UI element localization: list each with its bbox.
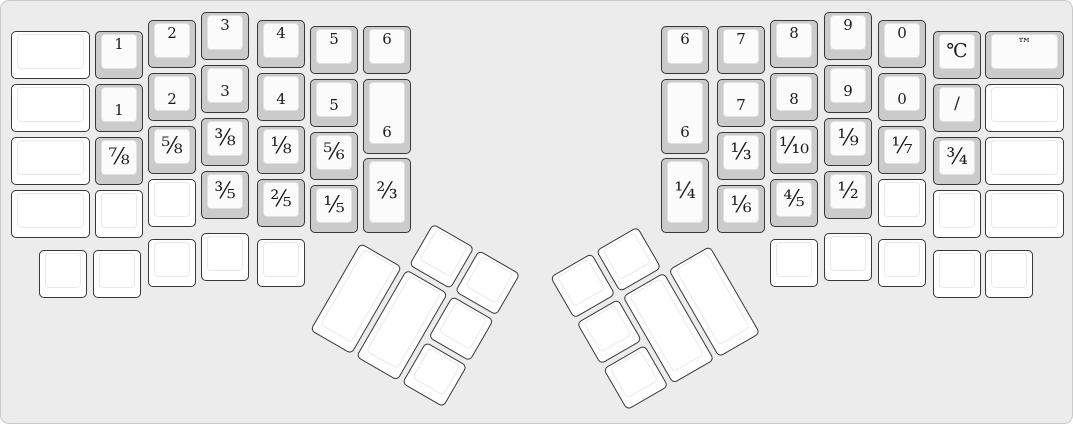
key-legend: ℃: [946, 42, 967, 61]
key-legend: ⅞: [108, 148, 129, 168]
key-7[interactable]: 7: [717, 79, 765, 127]
keycap-top: ⅓: [723, 135, 759, 170]
keycap-top: ⅕: [316, 188, 352, 223]
key-frac-2-5[interactable]: ⅖: [257, 179, 305, 227]
keycap-top: 6: [667, 29, 703, 64]
keycap-top: 6: [369, 82, 405, 144]
keycap-top: 5: [316, 82, 352, 117]
key-celsius[interactable]: ℃: [933, 31, 981, 79]
key-legend: 6: [382, 32, 392, 47]
key-1[interactable]: 1: [95, 31, 143, 79]
key-legend: ⅒: [779, 137, 809, 157]
key-legend: 6: [680, 125, 690, 140]
keycap-top: 7: [723, 29, 759, 64]
key-6[interactable]: 6: [661, 79, 709, 154]
key-2[interactable]: 2: [148, 73, 196, 121]
key-frac-3-4[interactable]: ¾: [933, 137, 981, 185]
keycap-top: [438, 301, 487, 349]
keycap-top: ⅗: [207, 174, 243, 209]
key-3[interactable]: 3: [201, 12, 249, 60]
key-6[interactable]: 6: [661, 26, 709, 74]
keycap-top: [991, 193, 1058, 228]
keycap-top: ⅝: [154, 129, 190, 164]
keycap-top: ½: [830, 174, 866, 209]
key-blank[interactable]: [11, 137, 90, 185]
key-legend: ¾: [946, 148, 967, 168]
key-legend: 0: [897, 26, 907, 41]
key-slash[interactable]: /: [933, 84, 981, 132]
keycap-top: ⅖: [263, 182, 299, 217]
keycap-top: [17, 193, 84, 228]
key-blank[interactable]: [11, 190, 90, 238]
key-legend: ⅓: [730, 143, 751, 163]
key-legend: 6: [382, 125, 392, 140]
keycap-top: ⅚: [316, 135, 352, 170]
key-3[interactable]: 3: [201, 65, 249, 113]
key-legend: ⅛: [270, 137, 291, 157]
key-blank[interactable]: [39, 250, 87, 298]
key-6[interactable]: 6: [363, 79, 411, 154]
key-frac-1-10[interactable]: ⅒: [770, 126, 818, 174]
key-legend: 3: [220, 84, 230, 99]
key-legend: ⅝: [161, 137, 182, 157]
key-8[interactable]: 8: [770, 73, 818, 121]
key-9[interactable]: 9: [824, 12, 872, 60]
keycap-top: [263, 242, 299, 277]
key-blank[interactable]: [878, 179, 926, 227]
keycap-top: [884, 182, 920, 217]
keycap-top: 0: [884, 23, 920, 58]
keyboard-layout-canvas: 11⅞22⅝33⅜⅗44⅛⅖55⅚⅕66⅔66¼77⅓⅙88⅒⅘99⅑½00⅐℃…: [0, 0, 1073, 424]
keycap-top: [830, 236, 866, 271]
key-blank[interactable]: [257, 239, 305, 287]
key-legend: ⅐: [891, 137, 912, 157]
key-frac-4-5[interactable]: ⅘: [770, 179, 818, 227]
key-legend: ½: [837, 182, 858, 202]
key-legend: ⅑: [837, 129, 858, 149]
keycap-top: ¾: [939, 140, 975, 175]
key-legend: 6: [680, 32, 690, 47]
key-frac-1-9[interactable]: ⅑: [824, 118, 872, 166]
key-0[interactable]: 0: [878, 73, 926, 121]
key-legend: 7: [736, 32, 746, 47]
keycap-top: [101, 193, 137, 228]
key-frac-2-3[interactable]: ⅔: [363, 158, 411, 233]
key-frac-1-3[interactable]: ⅓: [717, 132, 765, 180]
key-frac-1-4[interactable]: ¼: [661, 158, 709, 233]
keycap-top: 6: [667, 82, 703, 144]
keycap-top: 9: [830, 68, 866, 103]
keycap-top: 8: [776, 76, 812, 111]
keycap-top: ⅐: [884, 129, 920, 164]
key-5[interactable]: 5: [310, 79, 358, 127]
key-legend: 5: [329, 98, 339, 113]
key-legend: ⅖: [270, 190, 291, 210]
key-blank[interactable]: [985, 137, 1064, 185]
key-blank[interactable]: [148, 239, 196, 287]
key-legend: 8: [789, 26, 799, 41]
key-5[interactable]: 5: [310, 26, 358, 74]
key-1[interactable]: 1: [95, 84, 143, 132]
keycap-top: ⅜: [207, 121, 243, 156]
key-legend: 2: [167, 26, 177, 41]
key-legend: 4: [276, 92, 286, 107]
key-frac-5-8[interactable]: ⅝: [148, 126, 196, 174]
key-blank[interactable]: [985, 84, 1064, 132]
keycap-top: [610, 350, 659, 398]
keycap-top: [939, 253, 975, 288]
key-legend: ⅘: [783, 190, 804, 210]
keycap-top: [991, 87, 1058, 122]
keycap-top: 5: [316, 29, 352, 64]
keycap-top: [419, 229, 468, 277]
key-4[interactable]: 4: [257, 20, 305, 68]
keycap-top: ⅔: [369, 161, 405, 223]
key-blank[interactable]: [878, 239, 926, 287]
keycap-top: 8: [776, 23, 812, 58]
keycap-top: ⅙: [723, 188, 759, 223]
key-trademark[interactable]: ™: [985, 31, 1064, 79]
key-blank[interactable]: [933, 190, 981, 238]
key-legend: ⅙: [730, 196, 751, 216]
keycap-top: [412, 347, 461, 395]
keycap-top: 3: [207, 15, 243, 50]
key-frac-3-5[interactable]: ⅗: [201, 171, 249, 219]
key-blank[interactable]: [148, 179, 196, 227]
keycap-top: 3: [207, 68, 243, 103]
key-legend: 9: [843, 84, 853, 99]
keycap-top: [583, 304, 632, 352]
key-blank[interactable]: [824, 233, 872, 281]
key-legend: 8: [789, 92, 799, 107]
keycap-top: [17, 140, 84, 175]
keycap-top: [154, 182, 190, 217]
key-frac-5-6[interactable]: ⅚: [310, 132, 358, 180]
key-legend: ⅗: [214, 182, 235, 202]
key-frac-7-8[interactable]: ⅞: [95, 137, 143, 185]
key-legend: 3: [220, 18, 230, 33]
key-legend: /: [954, 96, 960, 113]
key-legend: ¼: [674, 182, 695, 202]
key-6[interactable]: 6: [363, 26, 411, 74]
key-4[interactable]: 4: [257, 73, 305, 121]
key-frac-3-8[interactable]: ⅜: [201, 118, 249, 166]
keycap-top: [884, 242, 920, 277]
keycap-top: 1: [101, 34, 137, 69]
key-legend: 2: [167, 92, 177, 107]
key-legend: 4: [276, 26, 286, 41]
keycap-top: [776, 242, 812, 277]
keycap-top: 2: [154, 23, 190, 58]
key-legend: 7: [736, 98, 746, 113]
key-8[interactable]: 8: [770, 20, 818, 68]
key-blank[interactable]: [11, 31, 90, 79]
keycap-top: [991, 253, 1027, 288]
keycap-top: [991, 140, 1058, 175]
key-7[interactable]: 7: [717, 26, 765, 74]
keycap-top: [557, 259, 606, 307]
keycap-top: [17, 87, 84, 122]
keycap-top: 0: [884, 76, 920, 111]
key-blank[interactable]: [933, 250, 981, 298]
keycap-top: ™: [991, 34, 1058, 69]
keycap-top: 4: [263, 76, 299, 111]
keycap-top: ¼: [667, 161, 703, 223]
keycap-top: 1: [101, 87, 137, 122]
keycap-top: ⅒: [776, 129, 812, 164]
keycap-top: 7: [723, 82, 759, 117]
key-blank[interactable]: [985, 190, 1064, 238]
key-legend: 1: [114, 103, 124, 118]
key-blank[interactable]: [95, 190, 143, 238]
keycap-top: ⅞: [101, 140, 137, 175]
keycap-top: [17, 34, 84, 69]
key-legend: 9: [843, 18, 853, 33]
key-legend: ⅕: [323, 196, 344, 216]
keycap-top: /: [939, 87, 975, 122]
keycap-top: [465, 256, 514, 304]
key-2[interactable]: 2: [148, 20, 196, 68]
keycap-top: [154, 242, 190, 277]
key-frac-1-5[interactable]: ⅕: [310, 185, 358, 233]
keycap-top: [45, 253, 81, 288]
key-legend: 1: [114, 37, 124, 52]
key-0[interactable]: 0: [878, 20, 926, 68]
keycap-top: 2: [154, 76, 190, 111]
keycap-top: 6: [369, 29, 405, 64]
key-9[interactable]: 9: [824, 65, 872, 113]
key-legend: ⅚: [323, 143, 344, 163]
keycap-top: [939, 193, 975, 228]
key-legend: 5: [329, 32, 339, 47]
keycap-top: [603, 232, 652, 280]
key-frac-1-8[interactable]: ⅛: [257, 126, 305, 174]
keycap-top: ℃: [939, 34, 975, 69]
keycap-top: 4: [263, 23, 299, 58]
key-frac-1-6[interactable]: ⅙: [717, 185, 765, 233]
keycap-top: 9: [830, 15, 866, 50]
key-frac-1-7[interactable]: ⅐: [878, 126, 926, 174]
keycap-top: [99, 253, 135, 288]
key-blank[interactable]: [201, 233, 249, 281]
key-legend: ⅔: [376, 182, 397, 202]
keycap-top: ⅑: [830, 121, 866, 156]
key-frac-1-2[interactable]: ½: [824, 171, 872, 219]
key-blank[interactable]: [770, 239, 818, 287]
key-legend: ⅜: [214, 129, 235, 149]
key-blank[interactable]: [11, 84, 90, 132]
keycap-top: ⅛: [263, 129, 299, 164]
keycap-top: [207, 236, 243, 271]
keycap-top: ⅘: [776, 182, 812, 217]
key-blank[interactable]: [93, 250, 141, 298]
key-blank[interactable]: [985, 250, 1033, 298]
key-legend: 0: [897, 92, 907, 107]
key-legend: ™: [1018, 37, 1032, 51]
